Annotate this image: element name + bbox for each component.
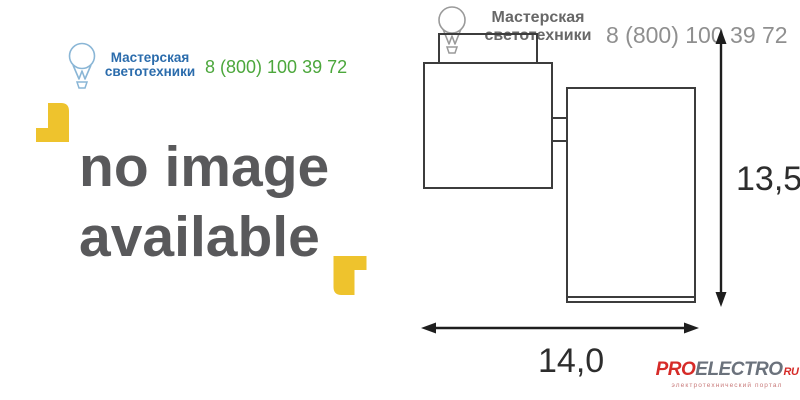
corner-bracket-icon (36, 103, 69, 142)
logo-part-ru: RU (784, 366, 799, 378)
fixture-lamp-rim (567, 296, 695, 298)
dimension-arrow-vertical-icon (713, 29, 729, 307)
brand-name-line2: светотехники (98, 65, 202, 79)
brand-name-line1: Мастерская (98, 51, 202, 65)
product-image-composite: Мастерская светотехники 8 (800) 100 39 7… (0, 0, 800, 400)
proelectro-tagline: электротехнический портал (660, 382, 794, 389)
logo-part-pro: PRO (656, 359, 696, 381)
height-dimension-label: 13,5 (736, 160, 800, 199)
placeholder-line1: no image (79, 132, 329, 202)
brand-name: Мастерская светотехники (98, 51, 202, 79)
proelectro-logo: PRO ELECTRO RU электротехнический портал (660, 359, 794, 389)
dimension-arrow-horizontal-icon (421, 320, 699, 336)
proelectro-logo-text: PRO ELECTRO RU (660, 359, 794, 381)
watermark-phone: 8 (800) 100 39 72 (606, 22, 788, 49)
fixture-joint (551, 117, 567, 142)
no-image-placeholder: no image available (79, 132, 329, 272)
width-dimension-label: 14,0 (538, 342, 604, 381)
lightbulb-icon (65, 42, 99, 92)
watermark-name-line1: Мастерская (474, 9, 602, 27)
fixture-lamp-body (566, 87, 696, 303)
corner-bracket-icon (331, 256, 369, 295)
fixture-bracket-body (423, 62, 553, 189)
brand-phone: 8 (800) 100 39 72 (205, 57, 347, 78)
fixture-mount-plate (438, 33, 538, 64)
logo-part-electro: ELECTRO (695, 359, 782, 381)
placeholder-line2: available (79, 202, 329, 272)
